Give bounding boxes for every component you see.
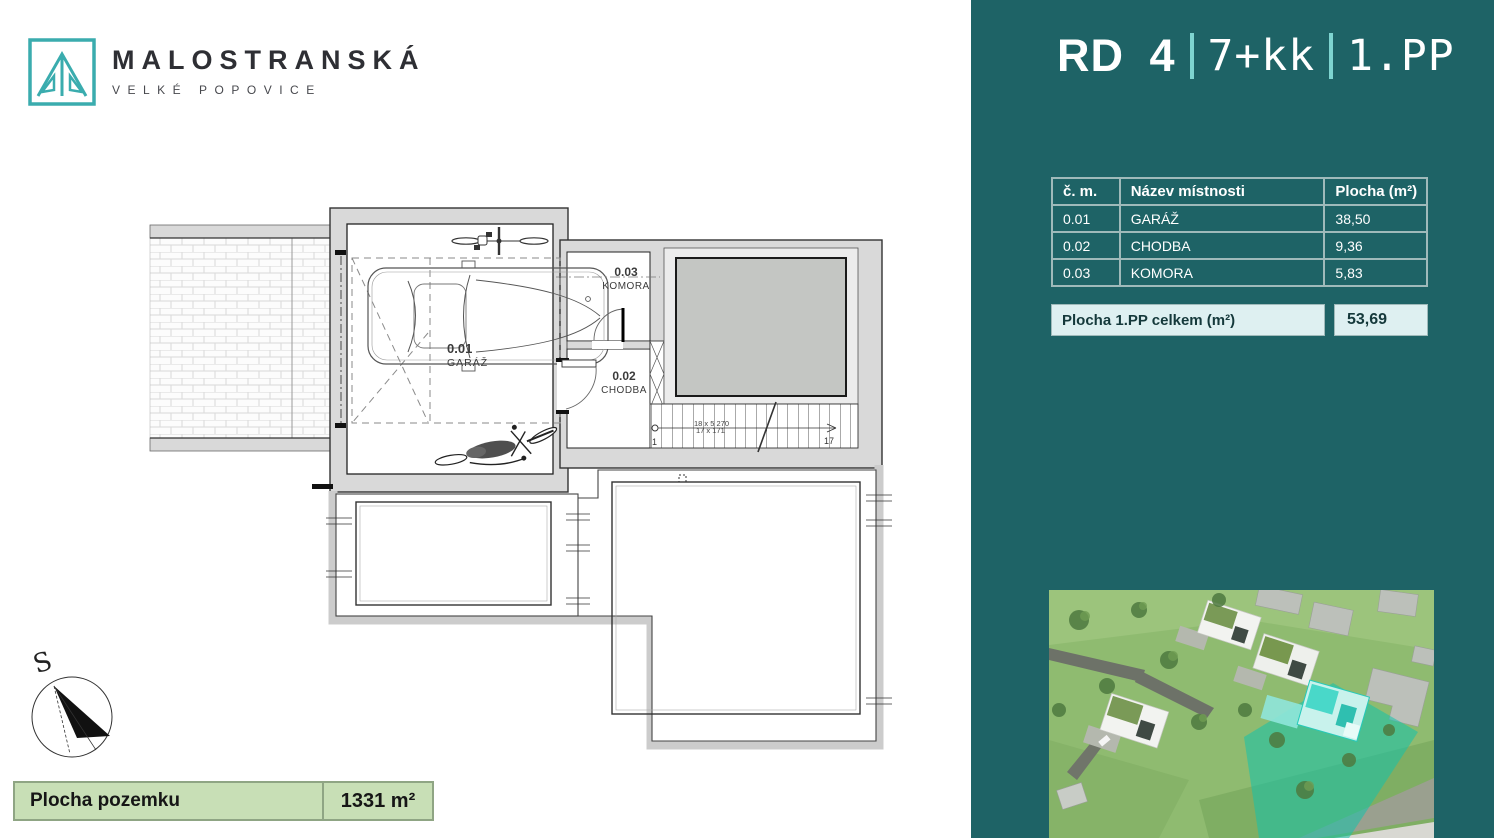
header-separator — [1329, 33, 1333, 79]
stairs-dim-2: 17 x 171 — [696, 426, 725, 435]
room-name: CHODBA — [1120, 232, 1325, 259]
total-area-row: Plocha 1.PP celkem (m²) 53,69 — [1051, 304, 1428, 336]
komora-number: 0.03 — [614, 265, 638, 279]
total-area-label: Plocha 1.PP celkem (m²) — [1051, 304, 1325, 336]
aerial-render-image — [1049, 590, 1434, 838]
table-row: 0.01 GARÁŽ 38,50 — [1052, 205, 1427, 232]
room-area: 5,83 — [1324, 259, 1427, 286]
header-separator — [1190, 33, 1194, 79]
compass-icon: S — [30, 646, 112, 757]
room-table: č. m. Název místnosti Plocha (m²) 0.01 G… — [1051, 177, 1428, 287]
garaz-name: GARÁŽ — [447, 356, 488, 369]
info-panel: RD 4 7+kk 1.PP č. m. Název místnosti Plo… — [971, 0, 1494, 838]
brand-title: MALOSTRANSKÁ — [112, 47, 426, 74]
room-name: KOMORA — [1120, 259, 1325, 286]
room-number: 0.03 — [1052, 259, 1120, 286]
hatched-wall — [650, 341, 664, 408]
total-area-value: 53,69 — [1334, 304, 1428, 336]
table-row: 0.02 CHODBA 9,36 — [1052, 232, 1427, 259]
stairs-last-step: 17 — [824, 436, 834, 446]
floor-plan-drawing: 1 17 18 x 5 270 17 x 171 — [0, 0, 971, 838]
unit-layout: 7+kk — [1208, 31, 1316, 81]
terrace-outlines — [312, 465, 892, 745]
table-row: 0.03 KOMORA 5,83 — [1052, 259, 1427, 286]
col-area: Plocha (m²) — [1324, 178, 1427, 205]
plot-area-label: Plocha pozemku — [15, 783, 322, 819]
garaz-number: 0.01 — [447, 341, 472, 356]
col-name: Název místnosti — [1120, 178, 1325, 205]
plot-area-value: 1331 m² — [324, 783, 432, 819]
unit-header: RD 4 7+kk 1.PP — [1057, 28, 1455, 84]
unit-id: RD 4 — [1057, 30, 1176, 82]
room-number: 0.01 — [1052, 205, 1120, 232]
room-name: GARÁŽ — [1120, 205, 1325, 232]
stairs-first-step: 1 — [652, 437, 657, 447]
komora-name: KOMORA — [602, 281, 649, 292]
col-number: č. m. — [1052, 178, 1120, 205]
chodba-name: CHODBA — [601, 385, 647, 396]
compass-north-label: S — [30, 646, 56, 680]
light-well-block — [664, 248, 858, 404]
brand-logo-icon — [28, 38, 96, 106]
plan-page: 1 17 18 x 5 270 17 x 171 — [0, 0, 971, 838]
brand-logo: MALOSTRANSKÁ VELKÉ POPOVICE — [28, 38, 426, 106]
staircase: 1 17 18 x 5 270 17 x 171 — [650, 402, 858, 452]
room-area: 9,36 — [1324, 232, 1427, 259]
unit-floor: 1.PP — [1347, 31, 1455, 81]
chodba-number: 0.02 — [612, 369, 636, 383]
plot-area-bar: Plocha pozemku 1331 m² — [13, 781, 434, 821]
room-number: 0.02 — [1052, 232, 1120, 259]
driveway-ramp — [150, 225, 342, 451]
room-table-header-row: č. m. Název místnosti Plocha (m²) — [1052, 178, 1427, 205]
room-area: 38,50 — [1324, 205, 1427, 232]
brand-subtitle: VELKÉ POPOVICE — [112, 83, 426, 97]
